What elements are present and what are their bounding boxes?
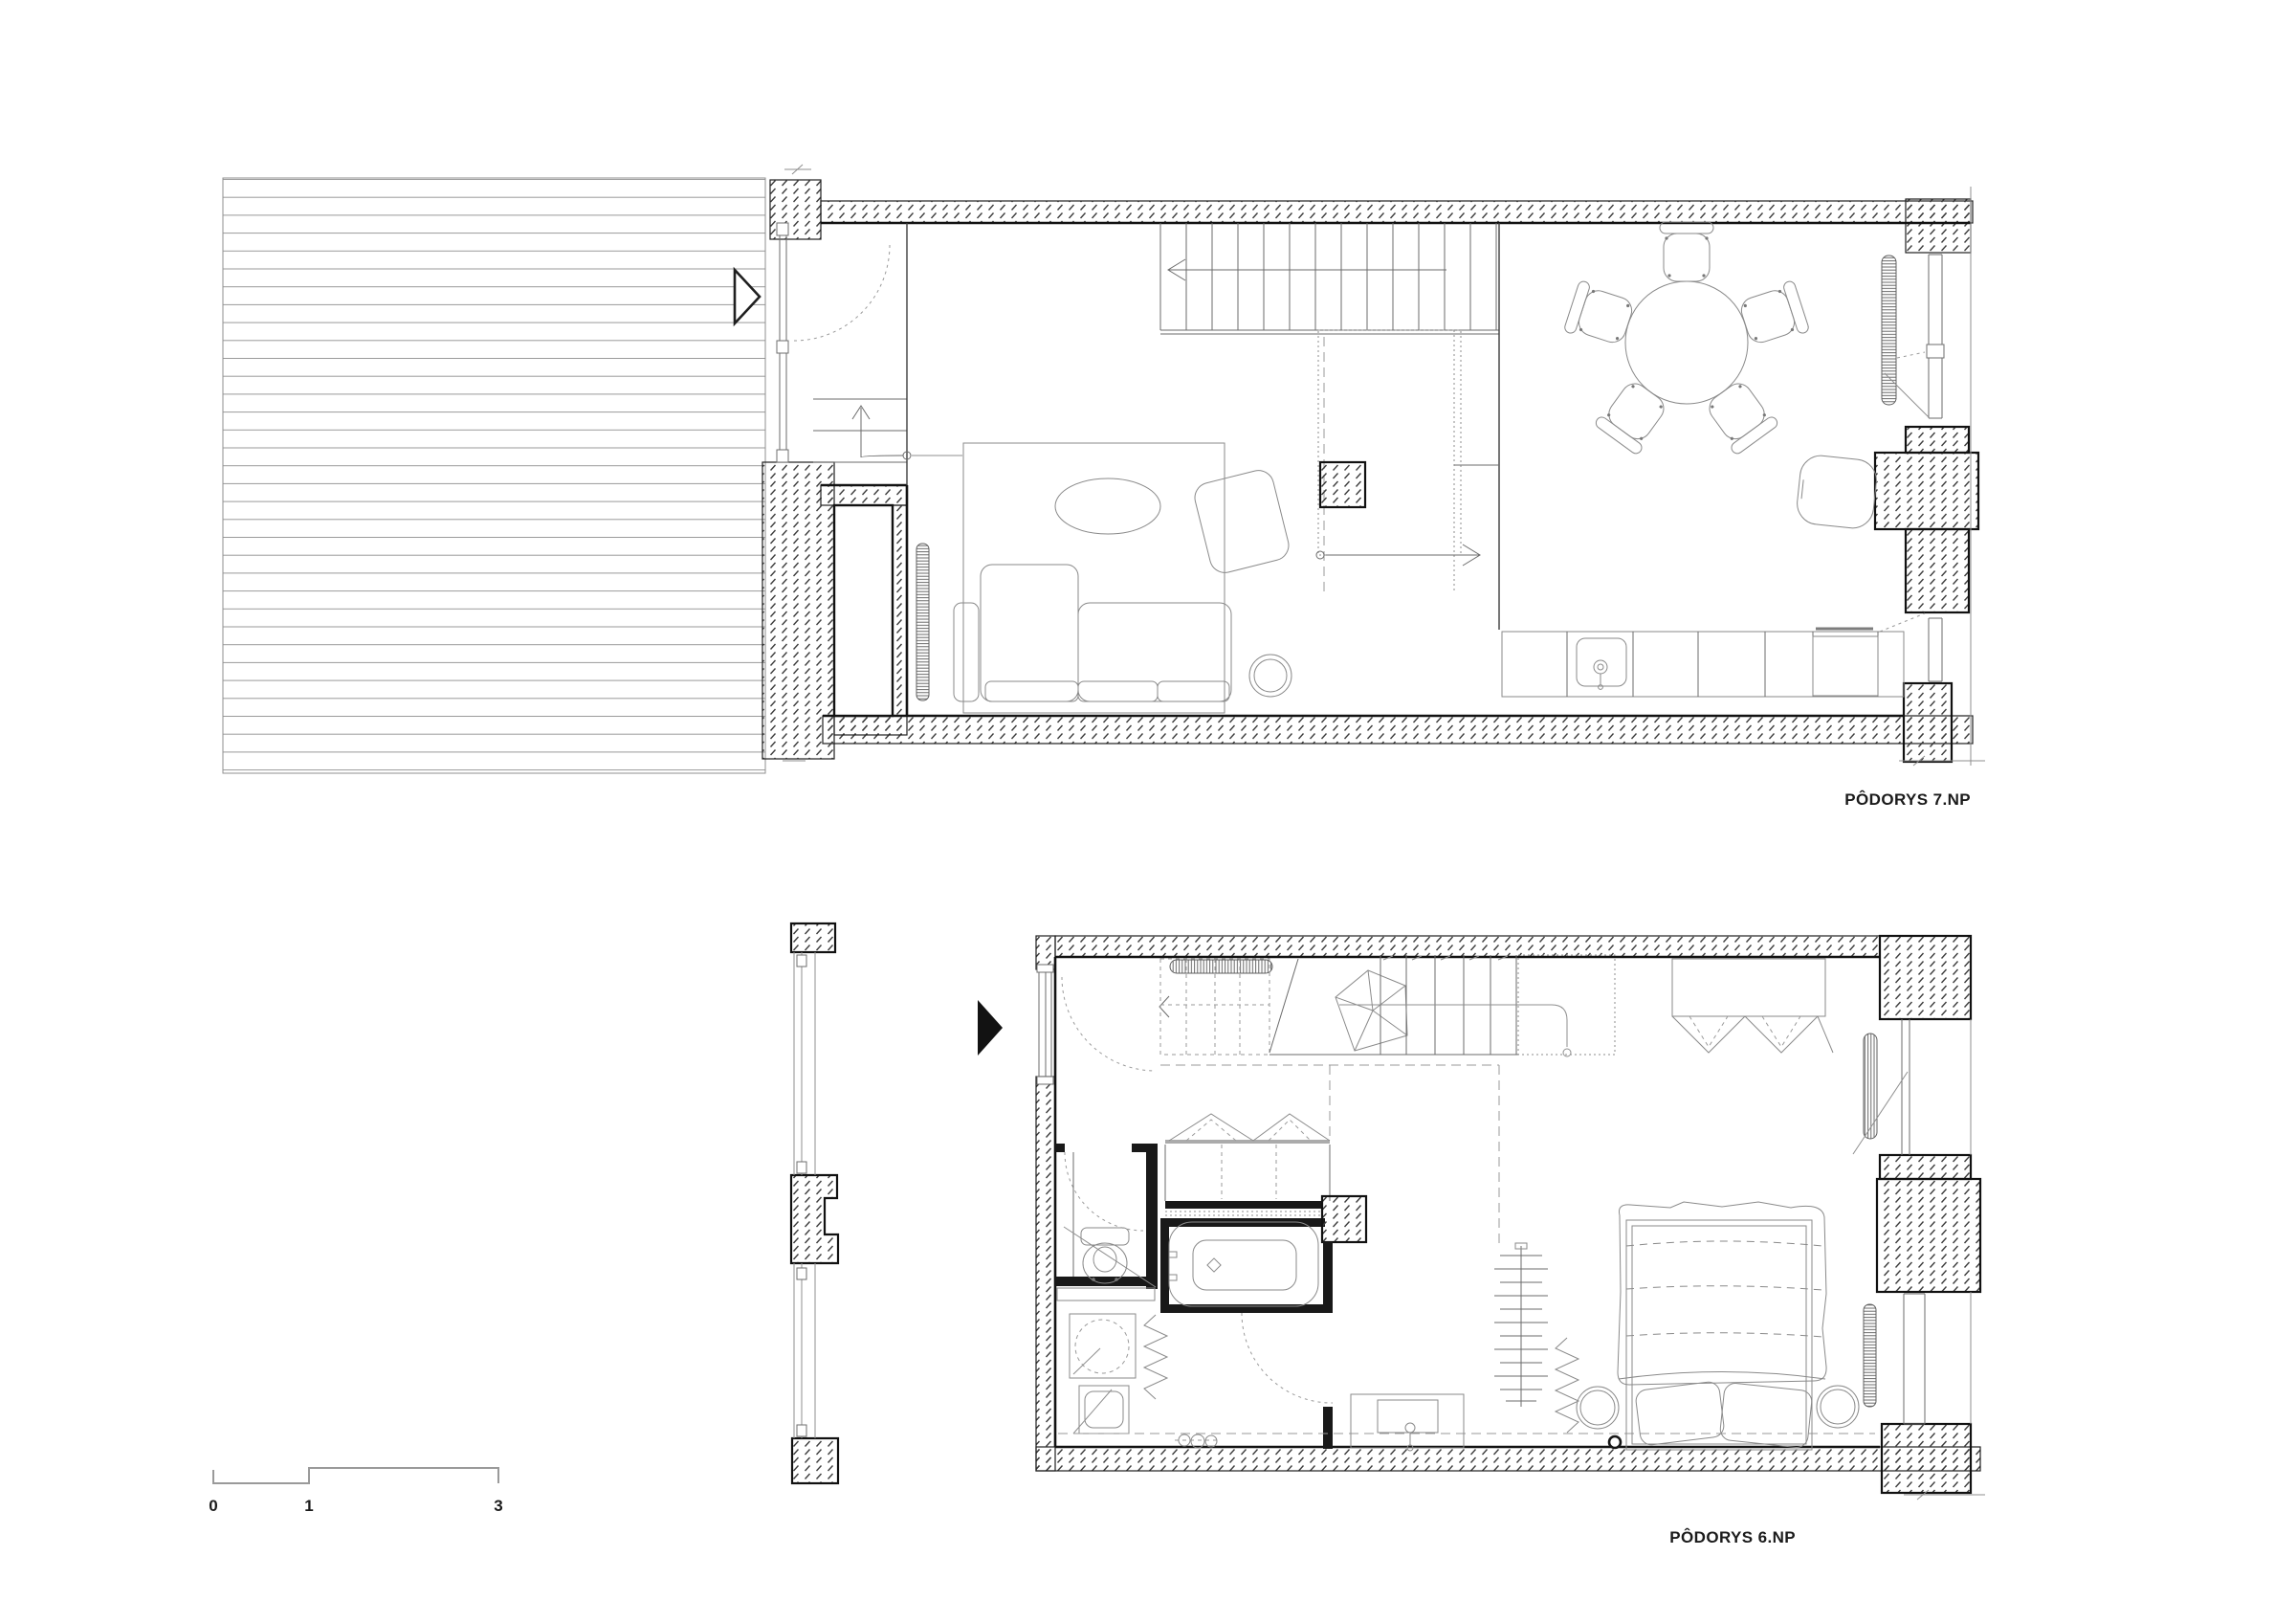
dining-chair xyxy=(1594,376,1672,456)
stair-direction-arrow-up xyxy=(1316,545,1480,566)
bathroom-door-swing xyxy=(1242,1313,1333,1403)
stool xyxy=(1577,1387,1619,1429)
floor-plan-drawing: PÔDORYS 7.NP xyxy=(0,0,2296,1623)
window-left-6np xyxy=(1037,965,1053,1084)
shaft-void xyxy=(834,505,893,716)
floor-plan-6np: PÔDORYS 6.NP xyxy=(791,923,1985,1546)
kitchen-7np xyxy=(1502,629,1904,697)
shelf xyxy=(1057,1288,1155,1301)
radiator xyxy=(916,544,929,700)
washing-machine xyxy=(1070,1314,1136,1378)
staircase-6np xyxy=(1160,955,1615,1244)
closet xyxy=(1165,1114,1330,1215)
wardrobe xyxy=(1672,959,1833,1053)
sofa xyxy=(954,565,1231,701)
column xyxy=(1320,462,1365,507)
exterior-walls-6np xyxy=(1036,936,1980,1493)
scale-tick-3: 3 xyxy=(494,1497,502,1515)
column xyxy=(1322,1196,1366,1242)
bathroom xyxy=(1070,1196,1366,1449)
floor-point xyxy=(1609,1436,1621,1448)
radiator xyxy=(1864,1304,1876,1407)
toilet xyxy=(1081,1228,1129,1283)
entry-6np xyxy=(1062,959,1272,1071)
radiator xyxy=(1864,1034,1877,1139)
pillow xyxy=(1719,1382,1813,1448)
heater-coil xyxy=(1144,1315,1167,1399)
pillow xyxy=(1635,1381,1725,1446)
entry-glazing-7np xyxy=(777,223,962,485)
side-table xyxy=(1249,655,1291,697)
stool xyxy=(1817,1386,1859,1428)
drawing-sheet: PÔDORYS 7.NP xyxy=(0,0,2296,1623)
cooktop xyxy=(1813,629,1878,696)
radiator xyxy=(1170,960,1272,973)
exterior-walls-7np xyxy=(762,180,1978,766)
floor-plan-7np: PÔDORYS 7.NP xyxy=(223,165,1985,809)
facade-section-strip xyxy=(791,923,838,1483)
bed xyxy=(1618,1202,1826,1450)
entrance-arrow-6np xyxy=(978,1000,1003,1056)
dining-area-7np xyxy=(1563,222,1878,530)
dining-chair xyxy=(1660,222,1713,281)
bathtub xyxy=(1169,1222,1318,1306)
clothes-rack xyxy=(1494,1243,1548,1407)
terrace xyxy=(223,178,765,773)
dining-chair xyxy=(1701,376,1779,456)
bedroom xyxy=(1058,1202,1875,1451)
staircase-7np xyxy=(1160,223,1499,630)
duvet xyxy=(1618,1202,1826,1385)
scale-bar: 0 1 3 xyxy=(209,1468,502,1515)
entry-door-swing xyxy=(1062,977,1156,1071)
plan-title-6np: PÔDORYS 6.NP xyxy=(1669,1528,1796,1546)
coffee-table xyxy=(1055,478,1160,534)
lounge-chair xyxy=(1192,467,1292,575)
dining-table xyxy=(1625,281,1748,404)
stair-void xyxy=(1318,330,1461,555)
scale-tick-1: 1 xyxy=(304,1497,313,1515)
scale-tick-0: 0 xyxy=(209,1497,217,1515)
stove xyxy=(1795,454,1878,530)
kitchen-sink xyxy=(1577,638,1626,689)
plan-title-7np: PÔDORYS 7.NP xyxy=(1844,790,1971,809)
rug xyxy=(963,443,1225,713)
living-room-7np xyxy=(916,443,1291,713)
entry-door-swing xyxy=(794,245,890,341)
chimney-pier xyxy=(1906,427,1969,453)
heater-coil xyxy=(1556,1338,1578,1433)
shower-tray xyxy=(1073,1386,1129,1434)
vanity-basin xyxy=(1351,1394,1464,1451)
toilet-room xyxy=(1055,1144,1158,1301)
